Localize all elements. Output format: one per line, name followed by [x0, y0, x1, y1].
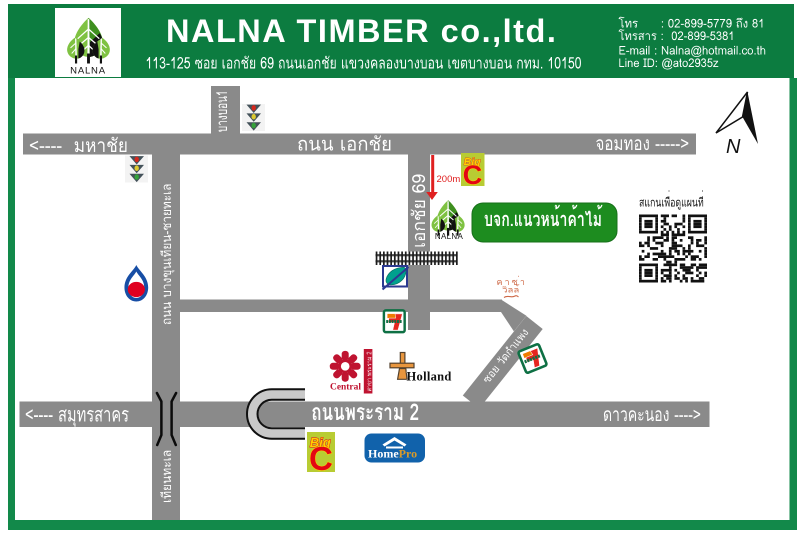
svg-text:Holland: Holland: [407, 370, 452, 384]
svg-text:Central: Central: [330, 383, 361, 393]
svg-text:N: N: [726, 136, 741, 158]
svg-text:C: C: [309, 440, 333, 477]
svg-text:200m.: 200m.: [437, 174, 463, 185]
svg-text:C: C: [463, 160, 483, 190]
svg-text:HomePro: HomePro: [368, 447, 417, 461]
svg-text:NALNA: NALNA: [435, 232, 464, 241]
svg-text:NALNA: NALNA: [70, 66, 106, 77]
